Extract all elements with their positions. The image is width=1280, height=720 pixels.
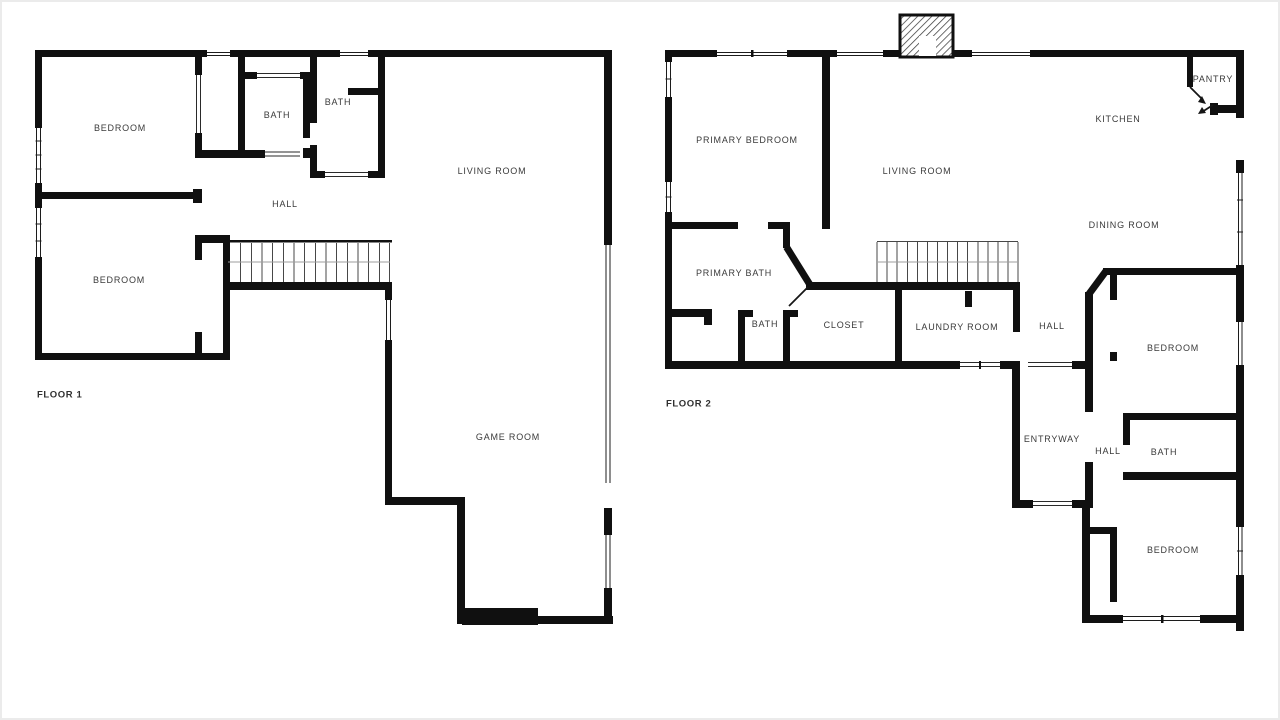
floor1-room-label-bedroom-lower: BEDROOM <box>93 275 145 285</box>
floor2-title: FLOOR 2 <box>666 399 711 410</box>
floor2-room-label-primary-bedroom: PRIMARY BEDROOM <box>696 135 798 145</box>
floor2-room-label-dining-room: DINING ROOM <box>1089 220 1160 230</box>
floorplan-image: FLOOR 1 BEDROOM BATH BATH LIVING ROOM HA… <box>0 0 1280 720</box>
floor2-room-label-bath-small: BATH <box>752 319 779 329</box>
floor1-stairs <box>225 240 392 290</box>
floor1-title: FLOOR 1 <box>37 390 82 401</box>
floor1-room-label-hall: HALL <box>272 199 298 209</box>
fireplace-icon <box>900 15 953 57</box>
floor2-room-label-kitchen: KITCHEN <box>1095 114 1140 124</box>
floor1-room-label-living-room: LIVING ROOM <box>458 166 527 176</box>
floorplan-svg <box>0 0 1280 720</box>
floor2-room-label-bedroom-lower: BEDROOM <box>1147 545 1199 555</box>
floor2-room-label-bedroom-upper: BEDROOM <box>1147 343 1199 353</box>
floor1-room-label-bedroom-upper: BEDROOM <box>94 123 146 133</box>
pantry-door-swing <box>1187 57 1244 115</box>
floor2-stairs <box>877 242 1018 283</box>
floor1-plan <box>35 50 613 625</box>
floor2-room-label-laundry-room: LAUNDRY ROOM <box>916 322 999 332</box>
floor2-room-label-entryway: ENTRYWAY <box>1024 434 1080 444</box>
floor2-room-label-closet: CLOSET <box>824 320 865 330</box>
floor2-room-label-primary-bath: PRIMARY BATH <box>696 268 772 278</box>
floor2-room-label-bath-lower: BATH <box>1151 447 1178 457</box>
floor2-room-label-living-room: LIVING ROOM <box>883 166 952 176</box>
floor1-room-label-bath-left: BATH <box>264 110 291 120</box>
floor2-room-label-hall-lower: HALL <box>1095 446 1121 456</box>
floor1-room-label-bath-right: BATH <box>325 97 352 107</box>
floor2-room-label-pantry: PANTRY <box>1193 74 1233 84</box>
floor1-room-label-game-room: GAME ROOM <box>476 432 540 442</box>
floor2-room-label-hall-upper: HALL <box>1039 321 1065 331</box>
